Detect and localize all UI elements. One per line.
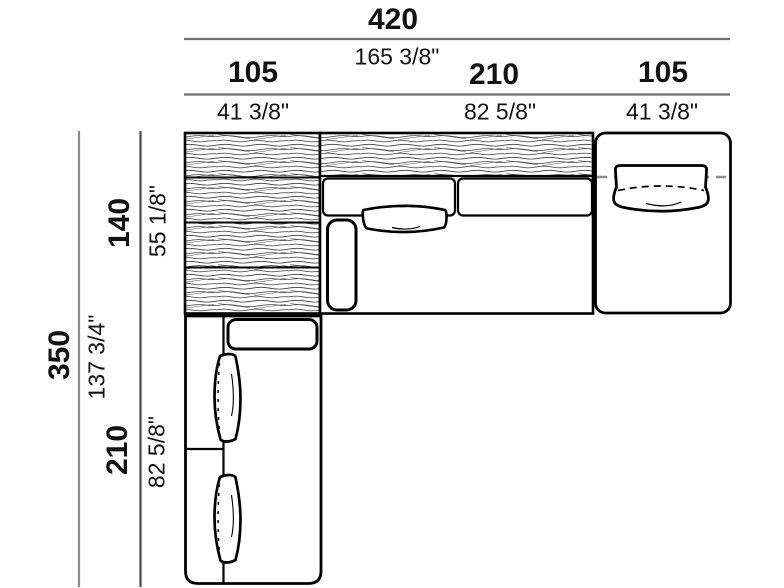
dim-top-seg2-inches: 82 5/8": [464, 101, 536, 124]
dim-top-seg1-inches: 41 3/8": [217, 101, 289, 124]
dim-left-seg1-inches: 55 1/8": [147, 185, 170, 257]
chaise-end-section: [596, 133, 731, 313]
back-cushion-upper: [215, 354, 241, 441]
backrest-hatch-band: [322, 135, 592, 176]
dim-left-seg1-cm: 140: [105, 198, 135, 248]
corner-section: [185, 133, 320, 314]
dim-left-seg2-cm: 210: [103, 425, 133, 475]
throw-pillow-center: [363, 206, 447, 232]
armrest-cushion-horizontal: [228, 320, 317, 350]
back-cushion-lower: [215, 475, 241, 562]
dim-left-total-cm: 350: [45, 330, 75, 380]
sofa-bottom-section: [186, 316, 322, 584]
dim-top-total-cm: 420: [368, 5, 418, 35]
dim-top-seg3-inches: 41 3/8": [626, 101, 698, 124]
sofa-top-section: [320, 133, 593, 314]
sofa-dimension-diagram: 420 165 3/8" 105 210 105 41 3/8" 82 5/8"…: [0, 0, 784, 588]
seat-back-cushion-right: [458, 179, 592, 216]
dim-top-seg3-cm: 105: [638, 58, 688, 88]
dim-left-total-inches: 137 3/4": [86, 315, 109, 400]
dim-top-total-inches: 165 3/8": [355, 46, 440, 69]
chaise-pillow: [614, 166, 709, 212]
dim-top-seg2-cm: 210: [469, 60, 519, 90]
dim-top-seg1-cm: 105: [228, 58, 278, 88]
dim-left-seg2-inches: 82 5/8": [146, 416, 169, 488]
armrest-cushion-vertical: [328, 220, 357, 310]
